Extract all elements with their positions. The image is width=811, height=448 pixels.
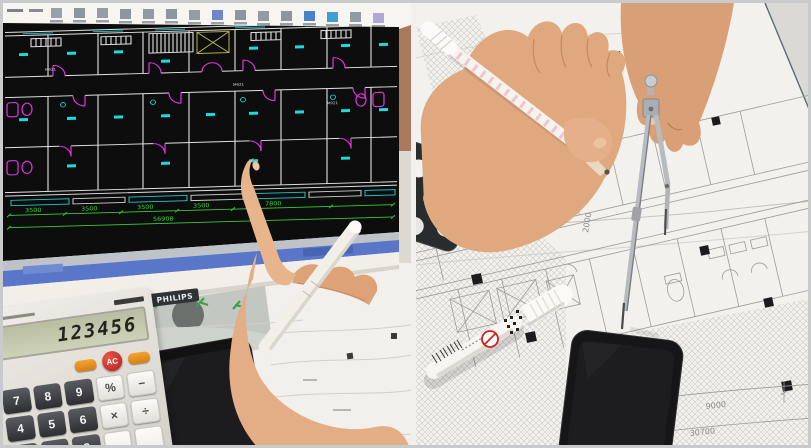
calc-key-5: 5 bbox=[36, 410, 67, 438]
calc-key-percent: % bbox=[95, 374, 126, 402]
calc-key-8: 8 bbox=[33, 383, 64, 411]
door-tag: M921 bbox=[233, 83, 245, 87]
background-wedge bbox=[399, 25, 411, 151]
calc-key-7: 7 bbox=[1, 387, 32, 415]
calculator-display: 123456 bbox=[56, 313, 139, 346]
calculator-brand-mark bbox=[0, 312, 35, 321]
calc-key-orange bbox=[74, 358, 97, 372]
pen-logo bbox=[482, 331, 498, 347]
compass-knob bbox=[645, 75, 657, 87]
dim-label: 7800 bbox=[265, 200, 282, 207]
calc-key-3: 3 bbox=[72, 434, 103, 448]
calculator-solar-panel bbox=[114, 296, 144, 305]
compass-lead bbox=[665, 209, 666, 235]
calc-key-equals: = bbox=[134, 425, 169, 448]
calc-key-minus: − bbox=[126, 369, 157, 397]
calc-key-orange bbox=[127, 350, 150, 364]
calc-key-1: 1 bbox=[9, 443, 40, 448]
smartphone-right bbox=[555, 329, 684, 448]
door-tag: M921 bbox=[45, 68, 57, 72]
calc-key-4: 4 bbox=[5, 415, 36, 443]
dim-label: 3500 bbox=[193, 202, 210, 209]
right-photo-blueprint: 9000 30700 2000 bbox=[416, 3, 811, 448]
calc-key-ac: AC bbox=[101, 350, 124, 373]
dim-label: 3500 bbox=[25, 207, 42, 214]
calculator: 123456 AC 7 8 9 % − 4 5 6 × ÷ 1 2 3 + = … bbox=[0, 287, 178, 448]
pencil-lead bbox=[604, 169, 609, 174]
calc-key-6: 6 bbox=[68, 406, 99, 434]
calc-key-multiply: × bbox=[99, 402, 130, 430]
total-dim-label: 56908 bbox=[153, 216, 174, 223]
calc-key-divide: ÷ bbox=[130, 397, 161, 425]
photo-collage: M921 M921 M921 3500 3500 3500 3500 bbox=[0, 0, 811, 448]
dim-label: 3500 bbox=[137, 204, 154, 211]
calc-key-9: 9 bbox=[64, 378, 95, 406]
dim-label: 3500 bbox=[81, 206, 98, 213]
monitor-edge bbox=[399, 151, 411, 263]
calc-key-2: 2 bbox=[40, 438, 71, 448]
door-tag: M921 bbox=[327, 101, 339, 105]
calc-key-plus: + bbox=[103, 429, 138, 448]
